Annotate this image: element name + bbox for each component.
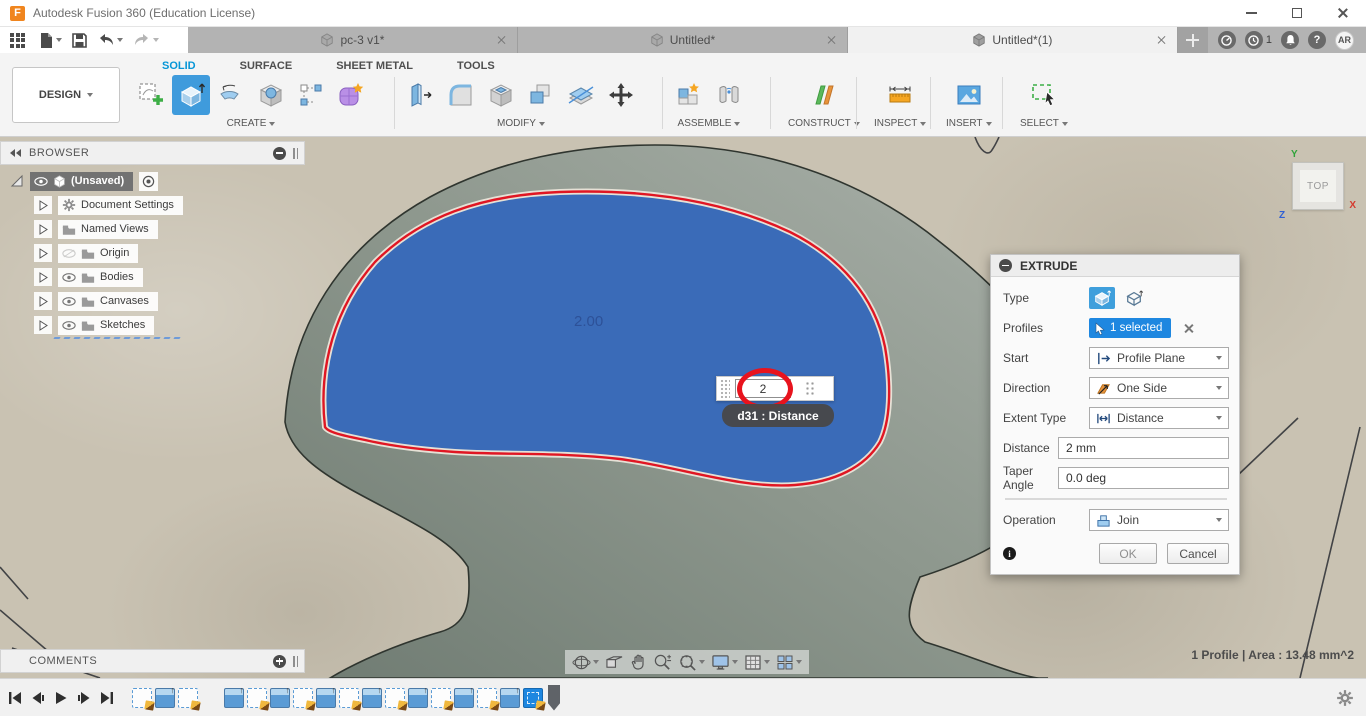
timeline-feature-sketch[interactable] [477,688,497,708]
insert-group-label[interactable]: INSERT [946,118,992,129]
folder-icon [81,248,95,259]
distance-value-input[interactable] [735,379,791,398]
extent-type-select[interactable]: Distance [1089,407,1229,429]
disclosure-icon[interactable] [34,244,52,262]
comments-panel-header[interactable]: COMMENTS [0,649,305,673]
extrude-type-solid-button[interactable] [1089,287,1115,309]
chevron-down-icon [56,38,62,42]
item-label: Origin [100,247,129,259]
distance-input-toolbar[interactable] [716,376,834,401]
ribbon-tab-sheetmetal[interactable]: SHEET METAL [314,58,435,74]
undo-button[interactable] [95,31,125,49]
folder-icon [62,224,76,235]
navigation-toolbar [565,650,809,674]
profiles-selected-button[interactable]: 1 selected [1089,318,1171,338]
go-to-start-button[interactable] [8,691,22,705]
chevron-down-icon [732,660,738,664]
construct-plane-icon [810,81,838,109]
job-status-button[interactable] [1218,31,1236,49]
help-button[interactable] [1308,31,1326,49]
grid-snap-button[interactable] [743,653,771,672]
ok-button[interactable]: OK [1099,543,1157,564]
zoom-window-icon [678,653,697,671]
bell-icon [1285,34,1296,46]
timeline-position-marker[interactable] [548,685,560,711]
inspect-group-label[interactable]: INSPECT [874,118,926,129]
notifications-button[interactable] [1281,31,1299,49]
plus-icon [1186,34,1199,47]
browser-title: BROWSER [29,147,89,159]
close-icon [1337,7,1349,19]
minimize-button[interactable] [1228,0,1274,26]
taper-angle-field[interactable] [1058,467,1229,489]
timeline-feature-sketch[interactable] [247,688,267,708]
timeline-feature-sketch[interactable] [385,688,405,708]
ribbon-tab-surface[interactable]: SURFACE [218,58,315,74]
timeline-feature-sketch[interactable] [178,688,198,708]
timeline-feature-sketch[interactable] [132,688,152,708]
panel-grip[interactable] [293,148,298,159]
distance-extent-icon [1096,411,1111,426]
go-to-end-button[interactable] [100,691,114,705]
step-back-button[interactable] [31,691,45,705]
fit-button[interactable] [677,652,706,672]
axis-z-label: Z [1279,210,1285,221]
direction-select[interactable]: One Side [1089,377,1229,399]
measure-icon [886,81,914,109]
revolve-icon [217,81,245,109]
assemble-group-label[interactable]: ASSEMBLE [678,118,741,129]
close-button[interactable] [1320,0,1366,26]
browser-item-named-views[interactable]: Named Views [34,217,183,241]
fusion-window: Autodesk Fusion 360 (Education License) [0,0,1366,716]
browser-tree: (Unsaved) Document Settings Named Views [10,169,183,337]
eye-icon[interactable] [62,321,76,330]
extent-type-label: Extent Type [1003,411,1089,425]
split-body-icon [567,81,595,109]
folder-icon [81,320,95,331]
panel-grip[interactable] [293,656,298,667]
collapse-panel-icon[interactable] [10,149,21,157]
chevron-down-icon [1216,356,1222,360]
timeline-feature-extrude[interactable] [362,688,382,708]
eye-icon[interactable] [34,177,48,186]
timeline-feature-extrude[interactable] [500,688,520,708]
view-cube-face[interactable]: TOP [1300,170,1336,202]
component-cube-icon [53,175,66,188]
close-tab-icon[interactable] [827,35,837,45]
fillet-icon [447,81,475,109]
chevron-down-icon [734,122,740,126]
hole-icon [257,81,285,109]
look-at-button[interactable] [604,653,625,672]
measure-button[interactable] [881,75,919,115]
pattern-button[interactable] [292,75,330,115]
notification-center-button[interactable] [1245,31,1263,49]
revolve-button[interactable] [212,75,250,115]
profiles-label: Profiles [1003,321,1089,335]
type-label: Type [1003,291,1089,305]
display-icon [711,654,730,671]
item-label: Document Settings [81,199,174,211]
pattern-icon [297,81,325,109]
cursor-icon [1095,322,1105,335]
extrude-icon [177,81,205,109]
item-label: Sketches [100,319,145,331]
redo-button[interactable] [131,31,161,49]
eye-icon[interactable] [62,273,76,282]
fillet-button[interactable] [442,75,480,115]
construct-plane-button[interactable] [805,75,843,115]
app-launcher-button[interactable] [8,31,31,50]
folder-icon [81,272,95,283]
move-button[interactable] [602,75,640,115]
info-icon[interactable]: i [1003,547,1016,560]
insert-canvas-button[interactable] [950,75,988,115]
create-sketch-button[interactable] [132,75,170,115]
distance-field[interactable] [1058,437,1229,459]
look-at-icon [605,654,624,671]
dialog-title: EXTRUDE [1020,259,1077,273]
image-icon [955,81,983,109]
grid-icon [10,33,25,48]
timeline-feature-sketch-active[interactable] [523,688,543,708]
document-tab-bar: pc-3 v1* Untitled* Untitled*(1) 1 [0,27,1366,53]
chevron-down-icon [1216,386,1222,390]
split-body-button[interactable] [562,75,600,115]
expand-icon[interactable] [10,174,24,188]
create-form-button[interactable] [332,75,370,115]
drag-handle-icon[interactable] [720,379,730,398]
browser-item-sketches[interactable]: Sketches [34,313,183,337]
close-tab-icon[interactable] [497,35,507,45]
clock-icon [1248,35,1259,46]
eye-hidden-icon[interactable] [62,249,76,258]
chevron-down-icon [1062,122,1068,126]
zoom-button[interactable] [652,652,673,672]
chevron-down-icon [539,122,545,126]
fusion-logo-icon [10,6,25,21]
folder-icon [81,296,95,307]
browser-panel-header[interactable]: BROWSER [0,141,305,165]
title-bar: Autodesk Fusion 360 (Education License) [0,0,1366,27]
pan-button[interactable] [629,652,648,672]
file-menu-button[interactable] [37,30,64,51]
clear-selection-icon[interactable] [1183,323,1194,334]
selection-status: 1 Profile | Area : 13.48 mm^2 [1191,648,1354,662]
view-cube[interactable]: TOP Y X Z [1292,162,1344,210]
viewports-icon [776,654,794,671]
chevron-down-icon [153,38,159,42]
operation-label: Operation [1003,513,1089,527]
document-tab-active[interactable]: Untitled*(1) [848,27,1178,53]
start-select[interactable]: Profile Plane [1089,347,1229,369]
modify-group-label[interactable]: MODIFY [497,118,545,129]
document-cube-icon [650,33,664,47]
minimize-panel-icon[interactable] [273,147,286,160]
timeline-feature-sketch[interactable] [431,688,451,708]
display-settings-button[interactable] [710,653,739,672]
zoom-icon [653,653,672,671]
minimize-icon [1246,12,1257,14]
gear-icon [1336,689,1354,707]
maximize-icon [1292,8,1302,18]
new-component-icon [675,81,703,109]
chevron-down-icon [269,122,275,126]
timeline-feature-sketch[interactable] [293,688,313,708]
more-options-icon[interactable] [805,381,816,396]
ribbon-tab-solid[interactable]: SOLID [140,58,218,74]
hole-button[interactable] [252,75,290,115]
chevron-down-icon [593,660,599,664]
cancel-button[interactable]: Cancel [1167,543,1229,564]
document-cube-icon [972,33,986,47]
disclosure-icon[interactable] [34,316,52,334]
dialog-divider [1005,498,1227,500]
pan-hand-icon [630,653,647,671]
timeline-feature-extrude[interactable] [270,688,290,708]
user-avatar[interactable]: AR [1335,31,1354,50]
press-pull-button[interactable] [402,75,440,115]
tab-label: pc-3 v1* [340,33,384,47]
select-icon [1030,81,1058,109]
gauge-icon [1221,35,1232,46]
workspace-selector[interactable]: DESIGN [12,67,120,123]
chevron-down-icon [699,660,705,664]
collapse-dialog-icon[interactable] [999,259,1012,272]
browser-root-row[interactable]: (Unsaved) [10,169,183,193]
chevron-down-icon [117,38,123,42]
viewport-canvas[interactable]: 2.00 BROWSER (Unsaved) [0,137,1366,678]
one-side-icon [1096,381,1111,396]
maximize-button[interactable] [1274,0,1320,26]
browser-item-bodies[interactable]: Bodies [34,265,183,289]
combine-button[interactable] [522,75,560,115]
joint-button[interactable] [710,75,748,115]
combine-icon [527,81,555,109]
create-group-label[interactable]: CREATE [227,118,276,129]
item-label: Named Views [81,223,149,235]
play-button[interactable] [54,691,68,705]
tab-label: Untitled*(1) [992,33,1052,47]
redo-icon [133,33,151,47]
timeline-features [132,685,560,711]
save-button[interactable] [70,31,89,50]
timeline-feature-extrude[interactable] [224,688,244,708]
chevron-down-icon [87,93,93,97]
document-cube-icon [320,33,334,47]
axis-y-label: Y [1291,149,1298,160]
extrude-type-thin-button[interactable] [1121,287,1147,309]
direction-label: Direction [1003,381,1089,395]
chevron-down-icon [1216,416,1222,420]
timeline-feature-extrude[interactable] [316,688,336,708]
chevron-down-icon [796,660,802,664]
chevron-down-icon [764,660,770,664]
joint-icon [715,81,743,109]
timeline-feature-extrude[interactable] [408,688,428,708]
profile-plane-icon [1096,351,1111,366]
gear-icon [62,198,76,212]
timeline-bar [0,678,1366,716]
select-button[interactable] [1025,75,1063,115]
timeline-feature-sketch[interactable] [339,688,359,708]
root-label: (Unsaved) [71,175,124,187]
notification-count: 1 [1266,34,1272,46]
press-pull-icon [407,81,435,109]
orbit-button[interactable] [571,652,600,673]
chevron-down-icon [920,122,926,126]
extrude-dialog-header[interactable]: EXTRUDE [991,255,1239,277]
chevron-down-icon [986,122,992,126]
new-component-button[interactable] [670,75,708,115]
timeline-settings-button[interactable] [1336,689,1354,707]
start-label: Start [1003,351,1089,365]
chevron-down-icon [1216,518,1222,522]
timeline-feature-extrude[interactable] [454,688,474,708]
axis-x-label: X [1349,200,1356,211]
browser-item-document-settings[interactable]: Document Settings [34,193,183,217]
document-tab[interactable]: Untitled* [518,27,848,53]
document-tab[interactable]: pc-3 v1* [188,27,518,53]
app-title: Autodesk Fusion 360 (Education License) [33,6,255,20]
join-operation-icon [1096,513,1111,528]
browser-item-origin[interactable]: Origin [34,241,183,265]
select-group-label[interactable]: SELECT [1020,118,1068,129]
dimension-tooltip: d31 : Distance [722,404,834,427]
extrude-dialog: EXTRUDE Type Profiles [990,254,1240,575]
extrude-button[interactable] [172,75,210,115]
construct-group-label[interactable]: CONSTRUCT [788,118,860,129]
toolbar-ribbon: DESIGN SOLID SURFACE SHEET METAL TOOLS [0,53,1366,137]
viewports-button[interactable] [775,653,803,672]
add-comment-icon[interactable] [273,655,286,668]
ribbon-tab-tools[interactable]: TOOLS [435,58,517,74]
timeline-feature-extrude[interactable] [155,688,175,708]
shell-icon [487,81,515,109]
item-label: Bodies [100,271,134,283]
create-sketch-icon [137,81,165,109]
distance-label: Distance [1003,441,1058,455]
taper-angle-label: Taper Angle [1003,464,1058,492]
move-icon [607,81,635,109]
close-tab-icon[interactable] [1157,35,1167,45]
file-icon [39,32,54,49]
comments-title: COMMENTS [29,655,97,667]
tab-label: Untitled* [670,33,715,47]
undo-icon [97,33,115,47]
save-icon [72,33,87,48]
orbit-icon [572,653,591,672]
step-forward-button[interactable] [77,691,91,705]
shell-button[interactable] [482,75,520,115]
form-icon [337,81,365,109]
workspace-label: DESIGN [39,89,81,101]
disclosure-icon[interactable] [34,268,52,286]
dimension-label: 2.00 [574,313,603,330]
eye-icon[interactable] [62,297,76,306]
disclosure-icon[interactable] [34,196,52,214]
activate-component-radio[interactable] [139,172,158,191]
browser-item-canvases[interactable]: Canvases [34,289,183,313]
item-label: Canvases [100,295,149,307]
operation-select[interactable]: Join [1089,509,1229,531]
disclosure-icon[interactable] [34,220,52,238]
disclosure-icon[interactable] [34,292,52,310]
new-document-button[interactable] [1178,27,1208,53]
grid-icon [744,654,762,671]
